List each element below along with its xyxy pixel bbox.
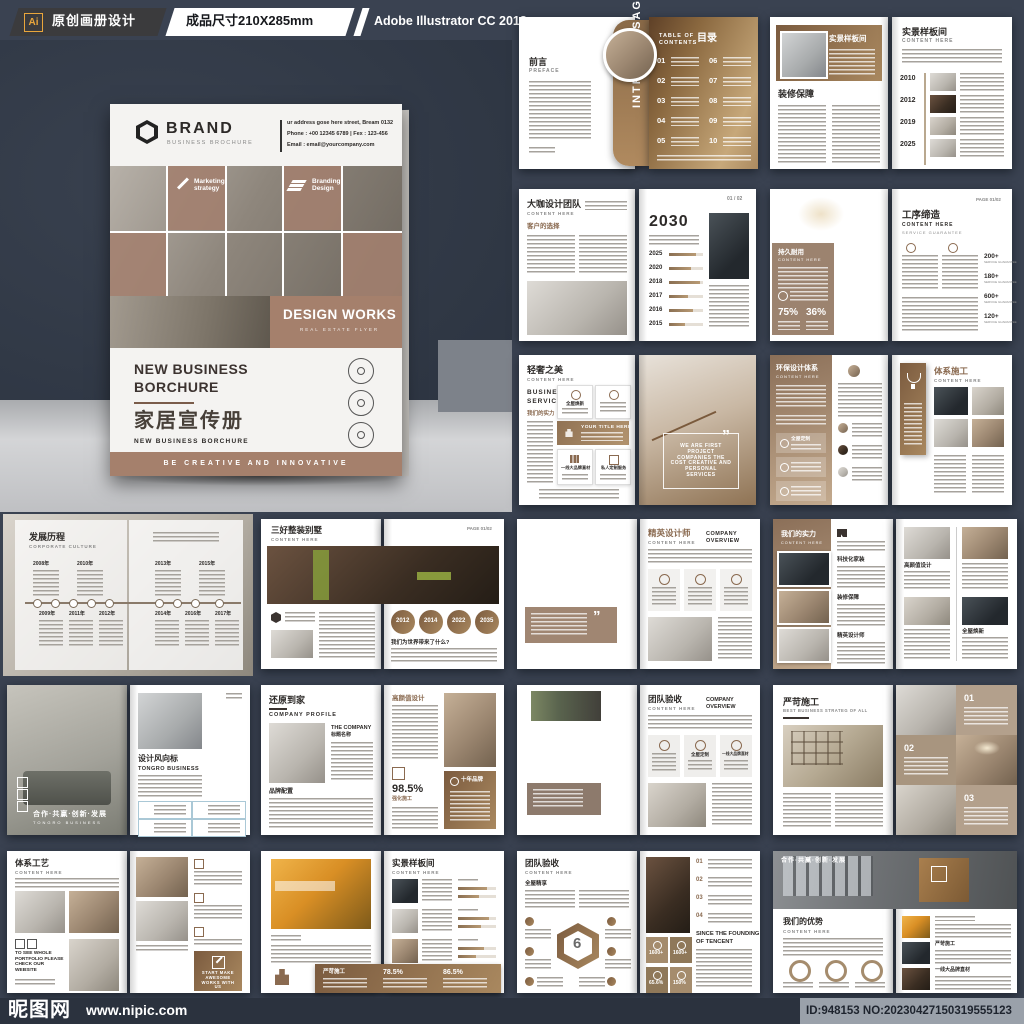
text-placeholder	[832, 105, 880, 163]
chart-icon	[570, 455, 579, 463]
tile-icon	[653, 941, 662, 950]
page: 高颜值设计 98.5% 强化施工 十年品牌	[384, 685, 504, 835]
year-row: 2025	[649, 251, 662, 258]
text-placeholder	[383, 978, 427, 988]
home-right-heading: 高颜值设计	[392, 695, 425, 702]
process-title: 工序缔造	[902, 211, 940, 222]
villa-sub: CONTENT HERE	[271, 537, 319, 542]
eco-trophy-bar	[900, 363, 926, 455]
text-placeholder	[648, 549, 752, 563]
toc-num: 01	[657, 57, 665, 65]
page: 实景样板间 CONTENT HERE 2010 2012 2019 2025	[892, 17, 1012, 169]
designer-photo	[648, 617, 712, 661]
checker-num: 02	[904, 743, 914, 753]
timeline-year-bottom: 2009年	[39, 612, 55, 618]
chandelier-glow	[798, 197, 844, 231]
cover-heading-rule	[134, 402, 194, 404]
address-line-1: ur address gose here street, Bream 0132	[287, 120, 393, 126]
title-rule	[269, 708, 287, 710]
text-placeholder	[783, 938, 883, 956]
page: TABLE OF CONTENTS 目录 01 02 03 04 05 06 0…	[649, 17, 758, 169]
cover-footer-text: BE CREATIVE AND INNOVATIVE	[163, 460, 348, 468]
text-placeholder	[226, 693, 242, 701]
toc-num: 08	[709, 97, 717, 105]
text-placeholder	[154, 823, 186, 833]
villa-year: 2014	[424, 618, 437, 625]
card-title: 持久耐用	[778, 249, 804, 256]
progress-bar	[669, 267, 703, 270]
timeline-dot	[51, 599, 60, 608]
text-placeholder	[708, 895, 752, 907]
brand-sub: BUSINESS BROCHURE	[167, 140, 253, 146]
progress-bar	[669, 253, 703, 256]
text-placeholder	[525, 890, 575, 910]
quote-card: ”	[525, 607, 617, 643]
team-subhead: 客户的选择	[527, 223, 560, 230]
ribbon-icon	[695, 574, 706, 585]
eco-photo	[934, 387, 968, 415]
list-icon	[194, 859, 204, 869]
fold-shadow	[885, 685, 893, 835]
text-placeholder	[649, 235, 699, 245]
toc-num: 09	[709, 117, 717, 125]
text-placeholder	[562, 474, 588, 481]
text-placeholder	[269, 798, 373, 830]
spread-hexagon: 团队验收 CONTENT HERE 全屋精享 6 01 02 03 04 SIN…	[513, 846, 764, 998]
craft-sub: CONTENT HERE	[15, 870, 63, 875]
fold-shadow	[885, 519, 893, 669]
list-dot-photo	[838, 445, 848, 455]
villa-title: 三好整装别墅	[271, 526, 322, 536]
text-placeholder	[136, 945, 188, 953]
year-row: 2017	[649, 293, 662, 300]
trend-sub: TONGRO BUSINESS	[138, 766, 199, 772]
text-placeholder	[562, 408, 588, 415]
text-placeholder	[15, 979, 55, 986]
toc-item-placeholder	[723, 137, 751, 146]
text-placeholder	[902, 255, 938, 291]
fold-shadow	[880, 355, 888, 505]
text-placeholder	[778, 321, 800, 330]
checker-num: 01	[964, 693, 974, 703]
luxury-title: 轻奢之美	[527, 365, 563, 375]
text-placeholder	[155, 570, 181, 596]
advantage-slogan: 合作·共赢·创新·发展	[781, 858, 846, 865]
cover-title: DESIGN WORKS	[283, 307, 396, 322]
market-overlay-1: MARKET-CO	[527, 759, 581, 767]
quote-box: ” WE ARE FIRST PROJECT COMPANIES THE COS…	[663, 433, 739, 489]
text-placeholder	[194, 905, 242, 921]
villa-year: 2012	[396, 618, 409, 625]
text-placeholder	[960, 73, 1004, 91]
advantage-item3: 一线大品牌直材	[935, 968, 970, 974]
text-placeholder	[962, 563, 1008, 591]
cover-title-sub: REAL ESTATE FLYER	[300, 327, 379, 332]
sample-banner: 实景样板间	[776, 25, 882, 81]
text-placeholder	[392, 807, 438, 829]
text-placeholder	[579, 977, 605, 989]
text-placeholder	[99, 620, 123, 648]
label-placeholder	[458, 879, 478, 883]
hex-item-dot	[607, 947, 616, 956]
text-placeholder	[531, 613, 587, 637]
text-placeholder	[791, 486, 821, 498]
stat-value: 1600+	[673, 951, 687, 957]
text-placeholder	[422, 879, 452, 903]
cover-tile-plain-2	[343, 233, 402, 296]
card-label: 私人定制服务	[601, 466, 626, 471]
heading-placeholder	[935, 916, 975, 921]
eco-photo	[972, 419, 1004, 447]
text-placeholder	[585, 201, 627, 210]
text-placeholder	[935, 976, 1011, 990]
progress-bar	[669, 281, 703, 284]
layers-icon	[291, 180, 306, 183]
fold-shadow	[892, 189, 900, 341]
triangle-icon	[609, 390, 619, 400]
mini-icon	[27, 939, 37, 949]
spread-trend: 合作·共赢·创新·发展 TONGRO BUSINESS 设计风向标 TONGRO…	[3, 680, 253, 842]
eco-sub2: CONTENT HERE	[934, 378, 982, 383]
text-placeholder	[724, 587, 748, 605]
progress-bar	[458, 925, 496, 928]
framed-photo	[777, 627, 831, 663]
fold-shadow	[880, 17, 888, 169]
text-placeholder	[391, 648, 497, 662]
text-placeholder	[904, 403, 922, 447]
service-icon	[906, 243, 916, 253]
card-icon	[141, 823, 150, 832]
market-title: 团队验收	[648, 695, 682, 705]
text-placeholder	[837, 566, 885, 588]
strength-item3: 精英设计师	[837, 633, 865, 639]
text-placeholder	[904, 757, 948, 777]
text-placeholder	[422, 939, 452, 963]
designer-title: 精英设计师	[648, 529, 691, 539]
history-sub: CORPORATE CULTURE	[29, 544, 97, 549]
fold-shadow	[629, 685, 637, 835]
home-brand-heading: 品牌配置	[269, 789, 293, 796]
text-placeholder	[208, 823, 240, 833]
home-side-2: 标题名称	[331, 733, 351, 739]
tile-icon	[677, 971, 686, 980]
villa-year: 2022	[452, 618, 465, 625]
text-placeholder	[579, 235, 627, 275]
text-placeholder	[709, 285, 749, 329]
advantage-row-photo	[902, 942, 930, 964]
home-card-title: 十年品牌	[461, 777, 483, 783]
text-placeholder	[935, 924, 1011, 938]
intro-circle-photo	[603, 28, 657, 82]
profile-card	[648, 569, 680, 611]
trend-card	[138, 801, 192, 819]
hex-photo	[646, 857, 690, 933]
strength-q4: 全屋焕新	[962, 629, 984, 635]
fold-shadow	[640, 685, 648, 835]
text-placeholder	[942, 255, 978, 291]
text-placeholder	[537, 977, 563, 989]
villa-page-num: PAGE 01/02	[467, 526, 492, 531]
timeline-dot	[215, 599, 224, 608]
timeline-year-bottom: 2017年	[215, 612, 231, 618]
sample-left-heading: 装修保障	[778, 89, 814, 99]
side-icon	[230, 779, 241, 790]
service-icon	[948, 243, 958, 253]
text-placeholder	[904, 629, 950, 659]
text-placeholder	[525, 929, 551, 941]
craft-photo	[69, 939, 119, 991]
eco-sub: CONTENT HERE	[776, 375, 819, 379]
toc-cn: 目录	[697, 33, 717, 44]
stat-label: SERVICE GUARANTEE	[984, 321, 1017, 324]
text-placeholder	[964, 707, 1008, 727]
process-sub: CONTENT HERE	[902, 223, 953, 229]
kitchen-stats-band: 严苛施工 78.5% 86.5%	[315, 964, 501, 993]
list-dot-photo	[838, 467, 848, 477]
toc-item-placeholder	[671, 77, 699, 86]
text-placeholder	[778, 105, 826, 163]
spread-kitchen: 实景样板间 CONTENT HERE 严苛施工 78.5% 86.5%	[257, 846, 508, 998]
text-placeholder	[185, 620, 209, 648]
fold-shadow	[892, 355, 900, 505]
spread-villa: 三好整装别墅 CONTENT HERE PAGE 01/02 2012 2014…	[257, 514, 508, 676]
team-title: 大咖设计团队	[527, 199, 581, 209]
text-placeholder	[902, 297, 978, 333]
team-photo	[527, 281, 627, 335]
band-p1: 78.5%	[383, 969, 403, 977]
progress-bar	[458, 955, 496, 958]
spread-luxury: 轻奢之美 CONTENT HERE BUSINESS SERVICES 我们的实…	[515, 350, 762, 510]
kitchen-sub: CONTENT HERE	[392, 870, 440, 875]
timeline-dot	[105, 599, 114, 608]
page: START MAKE AWESOME WORKS WITH US	[130, 851, 250, 993]
timeline-dot	[87, 599, 96, 608]
text-placeholder	[960, 95, 1004, 113]
eco-item1: 全屋定制	[791, 437, 810, 442]
villa-green-accent-2	[417, 572, 451, 580]
bed-shape	[23, 771, 111, 805]
page-photo: ENVATO MARKET CO INTERNATIONAL ”	[517, 519, 637, 669]
advantage-title: 我们的优势	[783, 918, 823, 927]
toc-item-placeholder	[671, 97, 699, 106]
text-placeholder	[852, 423, 882, 437]
toc-num: 02	[657, 77, 665, 85]
cover-tile-branding	[284, 166, 341, 230]
medal-icon	[659, 574, 670, 585]
trophy-stem	[911, 384, 915, 389]
timeline-year-top: 2008年	[33, 562, 49, 568]
text-placeholder	[33, 570, 59, 596]
process-tagline: SERVICE GUARANTEE	[902, 231, 963, 235]
text-placeholder	[138, 775, 202, 797]
market-photo	[648, 783, 706, 827]
process-overlay-card: 持久耐用 CONTENT HERE 75% 36%	[772, 243, 834, 335]
donut-stat	[825, 960, 847, 982]
craft-title: 体系工艺	[15, 859, 49, 869]
band-p2: 86.5%	[443, 969, 463, 977]
text-placeholder	[652, 753, 676, 771]
fold-shadow	[640, 519, 648, 669]
trend-card	[192, 819, 246, 837]
tile-icon	[677, 941, 686, 950]
sample-banner-title: 实景样板间	[829, 35, 867, 43]
stat-tile: 65.6%	[646, 967, 668, 993]
stat-label: SERVICE GUARANTEE	[984, 301, 1017, 304]
card-icon	[141, 805, 150, 814]
text-placeholder	[579, 890, 629, 910]
cover-tile-plain-1	[110, 233, 166, 296]
text-placeholder	[77, 570, 103, 596]
hex-item-dot	[607, 917, 616, 926]
text-placeholder	[450, 791, 490, 821]
hex-item-dot	[525, 917, 534, 926]
toc-num: 05	[657, 137, 665, 145]
text-placeholder	[652, 587, 676, 605]
text-placeholder	[778, 267, 828, 289]
craft-photo	[69, 891, 119, 933]
text-placeholder	[776, 415, 826, 427]
page: PAGE 01/02 工序缔造 CONTENT HERE SERVICE GUA…	[892, 189, 1012, 341]
quad-divider-v	[956, 527, 957, 661]
strength-q1: 高颜值设计	[904, 563, 932, 569]
craft-photo-r	[136, 901, 188, 941]
page-photo: 合作·共赢·创新·发展 TONGRO BUSINESS	[7, 685, 127, 835]
team-sub: CONTENT HERE	[527, 211, 575, 216]
list-num: 02	[696, 877, 703, 884]
craft-photo-r	[136, 857, 188, 897]
strict-sub: BEST BUSINESS STRATEG OF ALL	[783, 709, 868, 714]
kitchen-title: 实景样板间	[392, 859, 435, 869]
brochure-cover: BRAND BUSINESS BROCHURE ur address gose …	[110, 104, 402, 476]
fold-shadow	[119, 685, 127, 835]
eco-title2: 体系施工	[934, 367, 968, 377]
checker-tile: 01	[956, 685, 1017, 735]
stat-value: 1600+	[649, 951, 663, 957]
year-row: 2020	[649, 265, 662, 272]
sample-title: 实景样板间	[902, 27, 947, 37]
cover-footer: BE CREATIVE AND INNOVATIVE	[110, 452, 402, 476]
toc-label-2: CONTENTS	[659, 40, 697, 46]
text-placeholder	[648, 715, 752, 729]
toc-item-placeholder	[671, 117, 699, 126]
checker-num: 03	[964, 793, 974, 803]
cover-heading-1: NEW BUSINESS	[134, 362, 248, 378]
page: 设计风向标 TONGRO BUSINESS	[130, 685, 250, 835]
market-overview-2: OVERVIEW	[706, 704, 736, 710]
team-big-year: 2030	[649, 213, 689, 231]
spread-market: MARKET-CO INTERNATIONAL ” 团队验收 CONTENT H…	[513, 680, 764, 842]
page: 大咖设计团队 CONTENT HERE 客户的选择	[519, 189, 635, 341]
ai-icon: Ai	[24, 13, 43, 32]
timeline-year-bottom: 2014年	[155, 612, 171, 618]
text-placeholder	[600, 474, 626, 481]
process-page-num: PAGE 01/02	[976, 197, 1001, 202]
label-placeholder	[458, 939, 478, 943]
eco-photo	[934, 419, 968, 447]
timeline-dot	[155, 599, 164, 608]
cover-cn-title: 家居宣传册	[134, 410, 244, 432]
eco-item-card	[776, 481, 826, 501]
bulb-icon	[780, 463, 789, 472]
hex-number: 6	[573, 936, 581, 953]
eco-title: 环保设计体系	[776, 365, 818, 373]
timeline-dot	[173, 599, 182, 608]
text-placeholder	[422, 909, 452, 933]
year-row: 2015	[649, 321, 662, 328]
checker-photo	[896, 785, 956, 835]
side-panel	[438, 340, 512, 412]
text-placeholder	[837, 642, 885, 664]
text-placeholder	[962, 637, 1008, 659]
spread-process: 持久耐用 CONTENT HERE 75% 36% PAGE 01/02 工序缔…	[766, 184, 1019, 346]
page: 精英设计师 CONTENT HERE COMPANY OVERVIEW	[640, 519, 760, 669]
luxury-strength: 我们的实力	[527, 411, 555, 417]
toc-num: 06	[709, 57, 717, 65]
service-card: 全屋焕新	[557, 385, 593, 419]
text-placeholder	[285, 612, 315, 622]
profile-card	[720, 569, 752, 611]
mini-icon	[17, 777, 28, 788]
designer-overview-1: COMPANY	[706, 531, 737, 537]
list-icon	[194, 927, 204, 937]
craft-website-text: TO SEE WHOLE PORTFOLIO PLEASE CHECK OUR …	[15, 951, 65, 973]
home-photo-2	[444, 693, 496, 767]
toc-footer-placeholder	[657, 155, 751, 163]
spread-advantage: 合作·共赢·创新·发展 我们的优势 CONTENT HERE 严苛施工 一线大品…	[769, 846, 1021, 998]
spread-strict: 严苛施工 BEST BUSINESS STRATEG OF ALL 01 02 …	[769, 680, 1021, 842]
checker-photo	[896, 685, 956, 735]
text-placeholder	[708, 859, 752, 871]
poster: Ai 原创画册设计 成品尺寸210X285mm Adobe Illustrato…	[0, 0, 1024, 1024]
badge-icon	[659, 740, 670, 751]
spread-history-timeline: 发展历程 CORPORATE CULTURE 2008年 2010年 2013年…	[3, 514, 253, 676]
text-placeholder	[208, 805, 240, 815]
spread-strength: 我们的实力 CONTENT HERE 科技化家装 装修保障 精英设计师 高颜值设…	[769, 514, 1021, 676]
text-placeholder	[935, 950, 1011, 964]
text-placeholder	[581, 432, 623, 441]
page: 体系工艺 CONTENT HERE TO SEE WHOLE PORTFOLIO…	[7, 851, 127, 993]
page-photo: ” WE ARE FIRST PROJECT COMPANIES THE COS…	[639, 355, 756, 505]
text-placeholder	[902, 49, 1002, 65]
trophy-icon	[907, 373, 921, 383]
address-line-2: Phone : +00 12345 6789 | Fex : 123-456	[287, 131, 388, 137]
text-placeholder	[837, 541, 885, 551]
list-num: 04	[696, 913, 703, 920]
hex-item-dot	[607, 977, 616, 986]
spread-designer: ENVATO MARKET CO INTERNATIONAL ” 精英设计师 C…	[513, 514, 764, 676]
page: 团队验收 CONTENT HERE 全屋精享 6	[517, 851, 637, 993]
text-placeholder	[533, 789, 583, 809]
top-bar: Ai 原创画册设计 成品尺寸210X285mm Adobe Illustrato…	[0, 0, 512, 40]
stat-label: SERVICE GUARANTEE	[984, 281, 1017, 284]
fold-shadow	[119, 851, 127, 993]
timeline-photo	[930, 117, 956, 135]
progress-bar	[669, 323, 703, 326]
list-icon	[194, 893, 204, 903]
spread-eco-system: 环保设计体系 CONTENT HERE 全屋定制 体系施工	[766, 350, 1019, 510]
text-placeholder	[527, 235, 575, 275]
cover-icon-1-dot	[357, 367, 365, 375]
timeline-photo	[930, 73, 956, 91]
villa-year: 2035	[480, 618, 493, 625]
round-light	[974, 741, 1000, 755]
page: 01 / 02 2030 2025 2020 2018 2017 2016 20…	[639, 189, 756, 341]
hero-mockup: BRAND BUSINESS BROCHURE ur address gose …	[0, 40, 512, 512]
fold-shadow	[373, 685, 381, 835]
page: 01 02 03	[896, 685, 1017, 835]
kitchen-row-photo	[392, 939, 418, 963]
card-icon	[195, 805, 204, 814]
